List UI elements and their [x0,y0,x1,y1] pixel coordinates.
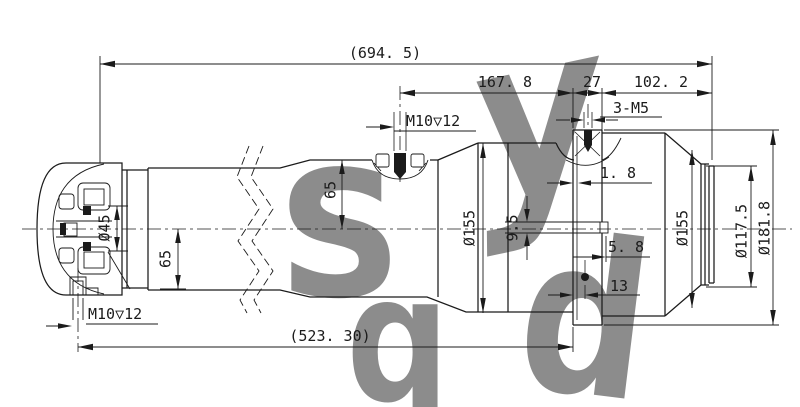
label-9-5: 9.5 [504,214,522,241]
label-1-8: 1. 8 [600,164,636,182]
key-pin [600,222,608,233]
label-65-mid: 65 [322,181,340,199]
watermark-letter-q: q [345,239,450,407]
spindle-dimension-drawing: y s d q [0,0,800,407]
label-3m5: 3-M5 [613,99,649,117]
label-dia181-8: Ø181.8 [756,201,774,255]
label-dia45: Ø45 [96,214,114,241]
label-65-left: 65 [157,250,175,268]
label-m10-bottom: M10▽12 [88,305,142,323]
label-overall-length: (694. 5) [349,44,421,62]
label-seg-102-2: 102. 2 [634,73,688,91]
label-dia155-right: Ø155 [674,210,692,246]
break-lines [237,146,273,313]
end-rings [701,164,714,285]
label-dia155-left: Ø155 [461,210,479,246]
halftone-watermark: y s d q [270,0,664,407]
label-mount-length: (523. 30) [289,327,370,345]
label-13: 13 [610,277,628,295]
drawing-sheet: y s d q [0,0,800,407]
label-m10-top: M10▽12 [406,112,460,130]
label-dia117-5: Ø117.5 [733,204,751,258]
collet-dark-fills [60,206,91,251]
label-5-8: 5. 8 [608,238,644,256]
label-seg-27: 27 [583,73,601,91]
label-seg-167-8: 167. 8 [478,73,532,91]
